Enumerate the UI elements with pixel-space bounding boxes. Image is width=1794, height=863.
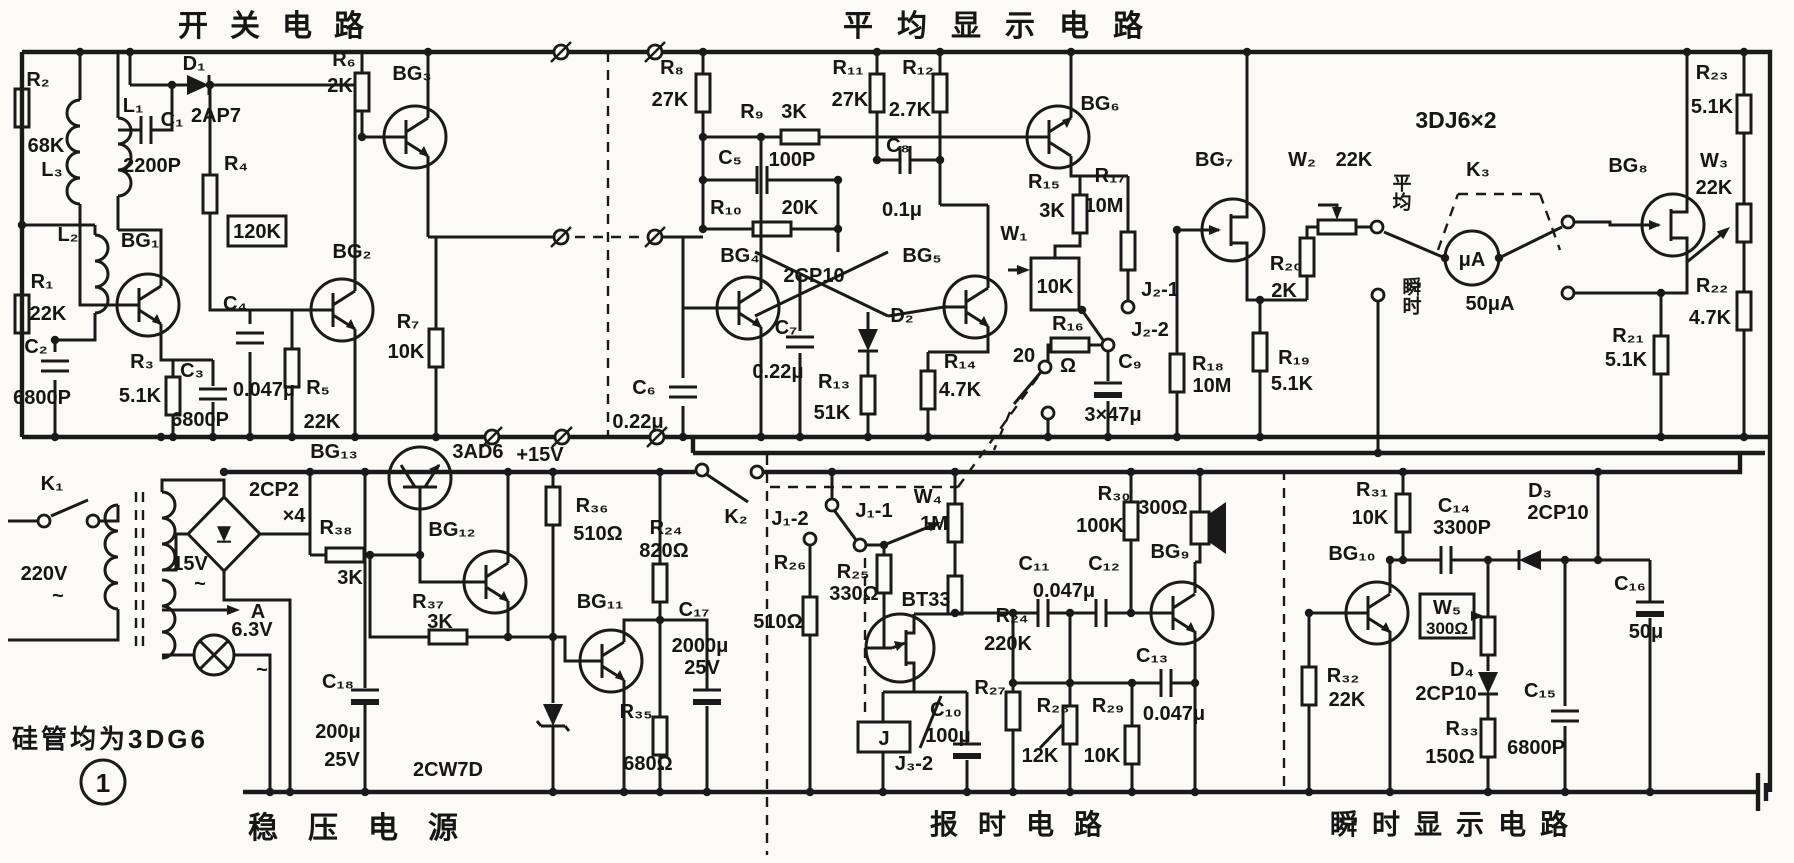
capacitor-C4 xyxy=(236,333,264,343)
label-D3: D₃ xyxy=(1528,480,1552,502)
label-D2: D₂ xyxy=(890,305,913,327)
label-R29-value: 10K xyxy=(1084,745,1121,767)
label-R2: R₂ xyxy=(26,69,49,91)
capacitor-C12 xyxy=(1096,599,1106,627)
resistor-R24-psu xyxy=(653,564,667,602)
title-switch-circuit: 开关电路 xyxy=(178,10,386,43)
capacitor-C14 xyxy=(1441,546,1451,574)
label-R21-value: 5.1K xyxy=(1605,349,1648,371)
label-C13: C₁₃ xyxy=(1136,645,1168,667)
transistor-BG2 xyxy=(311,279,373,341)
label-R15: R₁₅ xyxy=(1028,171,1060,193)
label-R17: R₁₇ xyxy=(1095,165,1126,187)
connector-icon xyxy=(551,227,571,247)
label-W2-value: 22K xyxy=(1336,149,1373,171)
label-D4-value: 2CP10 xyxy=(1415,683,1476,705)
label-R23: R₂₃ xyxy=(1696,62,1729,84)
label-220V-tilde: ~ xyxy=(52,585,64,607)
label-C6-value: 0.22μ xyxy=(612,411,663,433)
arrow-A-icon xyxy=(227,605,240,615)
label-C2-value: 6800P xyxy=(13,387,71,409)
contact-R16-lower xyxy=(1042,407,1054,419)
label-R16-unit: Ω xyxy=(1060,355,1076,377)
resistor-R36 xyxy=(546,487,560,525)
label-R12-value: 2.7K xyxy=(889,99,932,121)
label-C2: C₂ xyxy=(24,336,47,358)
label-relay-J: J xyxy=(878,728,889,750)
resistor-R9 xyxy=(781,130,819,144)
label-BG13: BG₁₃ xyxy=(310,441,358,463)
label-C9: C₉ xyxy=(1118,351,1141,373)
label-W1-value: 10K xyxy=(1037,276,1074,298)
label-2CP2-x4: ×4 xyxy=(283,505,307,527)
label-C3-value: 6800P xyxy=(171,409,229,431)
label-D2-type: 2CP10 xyxy=(783,265,844,287)
resistor-R23 xyxy=(1737,95,1751,133)
resistor-R21 xyxy=(1654,336,1668,374)
label-R28-value: 12K xyxy=(1022,745,1059,767)
label-R6: R₆ xyxy=(332,49,356,71)
resistor-R11 xyxy=(870,74,884,112)
label-C11: C₁₁ xyxy=(1019,553,1050,575)
transformer-secondary-6v-coil xyxy=(162,580,175,658)
label-R6-value: 2K xyxy=(327,75,353,97)
contact-J1-1 xyxy=(854,539,866,551)
label-3DJ6x2: 3DJ6×2 xyxy=(1415,107,1496,133)
label-C8-value: 0.1μ xyxy=(882,199,922,221)
label-C18: C₁₈ xyxy=(322,671,354,693)
label-R14: R₁₄ xyxy=(944,351,976,373)
label-C5: C₅ xyxy=(718,147,742,169)
label-R30: R₃₀ xyxy=(1098,483,1131,505)
label-C4: C₄ xyxy=(223,293,247,315)
label-R8-value: 27K xyxy=(652,89,689,111)
label-R37-value: 3K xyxy=(427,611,453,633)
contact-J2-2 xyxy=(1102,339,1114,351)
label-2CW7D: 2CW7D xyxy=(413,759,483,781)
capacitor-C6 xyxy=(669,387,697,397)
label-R20-value: 2K xyxy=(1271,280,1297,302)
resistor-R8 xyxy=(696,74,710,112)
resistor-R7 xyxy=(429,329,443,367)
label-L1: L₁ xyxy=(123,95,144,117)
label-R5: R₅ xyxy=(306,377,330,399)
label-R37: R₃₇ xyxy=(412,591,444,613)
label-BG5: BG₅ xyxy=(902,245,941,267)
resistors xyxy=(15,73,1751,764)
label-R7: R₇ xyxy=(397,311,419,333)
potentiometer-W2 xyxy=(1318,220,1356,234)
label-R11: R₁₁ xyxy=(833,57,864,79)
label-C1: C₁ xyxy=(161,109,184,131)
label-R9-value: 3K xyxy=(781,101,807,123)
label-plus15V: +15V xyxy=(516,444,564,466)
label-C4-value: 0.047μ xyxy=(233,379,295,401)
resistor-R32 xyxy=(1302,667,1316,705)
label-J1-2: J₁-2 xyxy=(771,508,808,530)
label-speaker-impedance: 300Ω xyxy=(1138,497,1187,519)
label-BG13-type: 3AD6 xyxy=(452,441,503,463)
coil-L3 xyxy=(67,100,80,204)
label-C17: C₁₇ xyxy=(679,599,710,621)
diode-D1 xyxy=(187,75,209,95)
label-R19-value: 5.1K xyxy=(1271,373,1314,395)
arrow-W2-icon xyxy=(1332,207,1342,220)
label-C3: C₃ xyxy=(180,360,204,382)
label-15V: 15V xyxy=(172,553,208,575)
label-C16-value: 50μ xyxy=(1629,621,1663,643)
label-C12: C₁₂ xyxy=(1088,553,1120,575)
label-K2: K₂ xyxy=(724,506,747,528)
potentiometer-W3 xyxy=(1737,204,1751,242)
label-BG9: BG₉ xyxy=(1150,541,1189,563)
label-R10: R₁₀ xyxy=(710,197,742,219)
label-D4: D₄ xyxy=(1450,659,1474,681)
resistor-R26 xyxy=(803,597,817,635)
label-R4: R₄ xyxy=(224,153,248,175)
label-220V: 220V xyxy=(21,563,68,585)
label-R2-value: 68K xyxy=(28,135,65,157)
capacitor-C1 xyxy=(141,116,151,144)
title-power-supply: 稳压电源 xyxy=(248,812,488,845)
switch-K2-contact xyxy=(751,466,763,478)
label-W2: W₂ xyxy=(1288,149,1316,171)
label-R27: R₂₇ xyxy=(974,677,1005,699)
label-R19: R₁₉ xyxy=(1278,347,1310,369)
label-meter-unit: μA xyxy=(1459,249,1486,271)
ujt-BT33 xyxy=(866,614,934,682)
label-R31: R₃₁ xyxy=(1356,479,1388,501)
label-R36-value: 510Ω xyxy=(573,523,622,545)
label-J2-2: J₂-2 xyxy=(1131,319,1169,341)
label-6.3V: 6.3V xyxy=(231,619,273,641)
connector-icon xyxy=(551,42,571,62)
label-R12: R₁₂ xyxy=(902,57,934,79)
label-R26: R₂₆ xyxy=(774,552,806,574)
label-R13: R₁₃ xyxy=(818,371,850,393)
label-R25-value: 330Ω xyxy=(829,583,878,605)
contact-J2-1 xyxy=(1122,301,1134,313)
label-R25: R₂₅ xyxy=(837,561,870,583)
label-R3-value: 5.1K xyxy=(119,385,162,407)
label-R4-value: 120K xyxy=(233,221,281,243)
capacitor-C11 xyxy=(1038,599,1048,627)
label-R36: R₃₆ xyxy=(576,495,609,517)
label-C17-voltage: 25V xyxy=(684,657,720,679)
diode-D3 xyxy=(1519,550,1541,570)
potentiometer-W4 xyxy=(948,504,962,542)
switch-K1-contact xyxy=(87,515,99,527)
label-R3: R₃ xyxy=(130,351,154,373)
contact-K3-right-upper xyxy=(1562,216,1574,228)
fet-BG7 xyxy=(1202,199,1264,261)
labels-chime: K₂ J₁-1 J₁-2 R₂₅ 330Ω R₂₆ 510Ω W₄ 1M BT3… xyxy=(724,483,1205,775)
label-BG8: BG₈ xyxy=(1608,155,1647,177)
label-R31-value: 10K xyxy=(1352,507,1389,529)
resistor-R14 xyxy=(921,371,935,409)
label-BG12: BG₁₂ xyxy=(428,519,475,541)
section-titles: 开关电路 平均显示电路 稳压电源 报时电路 瞬时显示电路 硅管均为3DG6 1 xyxy=(12,10,1582,845)
figure-number: 1 xyxy=(96,768,110,798)
label-R21: R₂₁ xyxy=(1612,325,1644,347)
label-R17-value: 10M xyxy=(1085,195,1124,217)
transistor-BG5 xyxy=(944,276,1006,338)
transistor-BG6 xyxy=(1027,106,1089,168)
label-R29: R₂₉ xyxy=(1092,695,1124,717)
label-C18-voltage: 25V xyxy=(324,749,360,771)
resistor-R16 xyxy=(1051,338,1089,352)
label-D1: D₁ xyxy=(183,53,206,75)
label-switch-instant: 瞬时 xyxy=(1400,277,1422,315)
label-R16: R₁₆ xyxy=(1052,313,1084,335)
label-J3-2: J₃-2 xyxy=(895,753,933,775)
label-6.3V-tilde: ~ xyxy=(256,659,268,681)
capacitor-C15 xyxy=(1551,711,1579,721)
label-BG4: BG₄ xyxy=(720,245,760,267)
label-R8: R₈ xyxy=(660,57,684,79)
resistor-R35 xyxy=(653,717,667,755)
speaker-icon xyxy=(1191,502,1226,554)
label-R13-value: 51K xyxy=(814,402,851,424)
label-meter-range: 50μA xyxy=(1466,293,1515,315)
label-R33-value: 150Ω xyxy=(1425,746,1474,768)
contact-R16-arm xyxy=(1039,361,1051,373)
label-R18-value: 10M xyxy=(1193,375,1232,397)
resistor-R22 xyxy=(1737,292,1751,330)
coil-L2 xyxy=(95,235,108,313)
label-L3: L₃ xyxy=(41,159,62,181)
switch-K1-contact xyxy=(38,515,50,527)
bridge-diode-icon xyxy=(217,526,231,541)
resistor-R19 xyxy=(1253,333,1267,371)
schematic-page: 开关电路 平均显示电路 稳压电源 报时电路 瞬时显示电路 硅管均为3DG6 1 … xyxy=(0,0,1794,863)
label-BG10: BG₁₀ xyxy=(1328,543,1375,565)
label-R15-value: 3K xyxy=(1039,200,1065,222)
label-R9: R₉ xyxy=(740,101,763,123)
title-average-display: 平均显示电路 xyxy=(843,10,1167,43)
label-C14-value: 3300P xyxy=(1433,517,1491,539)
transistor-BG10 xyxy=(1346,582,1408,644)
resistor-R18 xyxy=(1170,354,1184,392)
label-D1-value: 2AP7 xyxy=(191,105,241,127)
transistor-BG12 xyxy=(464,551,526,613)
zener-2CW7D xyxy=(537,704,569,731)
label-R28: R₂₈ xyxy=(1037,695,1070,717)
labels-average-display: R₈ 27K R₉ 3K C₅ 100P R₁₀ 20K R₁₁ 27K R₁₂… xyxy=(612,57,1733,433)
label-C10: C₁₀ xyxy=(930,699,962,721)
label-R1-value: 22K xyxy=(30,303,67,325)
label-C1-value: 2200P xyxy=(123,155,181,177)
label-D3-value: 2CP10 xyxy=(1527,502,1588,524)
label-W4: W₄ xyxy=(914,486,942,508)
label-C7-value: 0.22μ xyxy=(752,361,803,383)
label-C6: C₆ xyxy=(632,377,656,399)
label-R35: R₃₅ xyxy=(620,701,653,723)
label-C11-C12-value: 0.047μ xyxy=(1033,580,1095,602)
label-J1-1: J₁-1 xyxy=(855,500,892,522)
capacitor-C3 xyxy=(199,389,227,399)
resistor-R13 xyxy=(861,376,875,414)
resistor-R10 xyxy=(753,222,791,236)
label-R11-value: 27K xyxy=(832,89,869,111)
capacitor-C13 xyxy=(1161,669,1171,697)
main-rails xyxy=(22,52,1770,811)
label-C9-value: 3×47μ xyxy=(1084,404,1141,426)
label-W3: W₃ xyxy=(1700,150,1728,172)
label-C8: C₈ xyxy=(886,135,910,157)
label-R22: R₂₂ xyxy=(1696,275,1728,297)
label-R16-value: 20 xyxy=(1013,345,1035,367)
label-R26-value: 510Ω xyxy=(753,611,802,633)
diode-D4 xyxy=(1478,672,1498,694)
label-R38-value: 3K xyxy=(337,567,363,589)
resistor-R38 xyxy=(326,548,364,562)
capacitor-C18 xyxy=(351,690,379,705)
label-C17-value: 2000μ xyxy=(672,635,729,657)
label-C15: C₁₅ xyxy=(1524,680,1556,702)
label-R14-value: 4.7K xyxy=(939,379,982,401)
label-R24-psu: R₂₄ xyxy=(650,517,683,539)
label-R33: R₃₃ xyxy=(1446,718,1479,740)
capacitor-C17 xyxy=(693,690,721,705)
label-2CP2: 2CP2 xyxy=(249,479,299,501)
label-L2: L₂ xyxy=(57,224,78,246)
resistor-R29 xyxy=(1125,726,1139,764)
label-W1: W₁ xyxy=(1000,223,1027,245)
transistor-BG13 xyxy=(389,447,451,509)
potentiometer-W5 xyxy=(1481,617,1495,655)
diode-D2 xyxy=(858,329,878,351)
resistor-R27 xyxy=(1006,692,1020,730)
contact-K3-right-lower xyxy=(1562,287,1574,299)
label-BT33: BT33 xyxy=(902,589,951,611)
label-R1: R₁ xyxy=(31,271,54,293)
resistor-R25 xyxy=(877,555,891,593)
label-BG3: BG₃ xyxy=(392,63,431,85)
schematic-canvas: 开关电路 平均显示电路 稳压电源 报时电路 瞬时显示电路 硅管均为3DG6 1 … xyxy=(0,0,1794,863)
label-R24-psu-value: 820Ω xyxy=(639,540,688,562)
resistor-R12 xyxy=(933,74,947,112)
connector-icon xyxy=(645,227,665,247)
label-R10-value: 20K xyxy=(782,197,819,219)
label-C7: C₇ xyxy=(775,317,797,339)
label-R20: R₂₀ xyxy=(1270,253,1302,275)
resistor-R6 xyxy=(355,73,369,111)
transistor-BG1 xyxy=(117,274,179,336)
capacitor-C2 xyxy=(41,361,69,371)
label-W5: W₅ xyxy=(1433,597,1461,619)
label-R24-chime-value: 220K xyxy=(984,633,1032,655)
label-R18: R₁₈ xyxy=(1192,353,1224,375)
title-instant-display: 瞬时显示电路 xyxy=(1330,809,1582,840)
label-R38: R₃₈ xyxy=(319,517,352,539)
label-W3-value: 22K xyxy=(1696,177,1733,199)
label-BG7: BG₇ xyxy=(1195,149,1233,171)
label-BG6: BG₆ xyxy=(1080,93,1119,115)
transistor-BG9 xyxy=(1151,582,1213,644)
label-C15-value: 6800P xyxy=(1507,737,1565,759)
pilot-lamp-icon xyxy=(194,635,234,675)
label-C10-value: 100μ xyxy=(925,725,971,747)
label-C14: C₁₄ xyxy=(1438,495,1470,517)
label-BG1: BG₁ xyxy=(121,230,159,252)
contact-J1-1 xyxy=(826,499,838,511)
title-chime: 报时电路 xyxy=(930,809,1122,840)
contact-K3-instant xyxy=(1372,289,1384,301)
label-C13-value: 0.047μ xyxy=(1143,703,1205,725)
label-K1: K₁ xyxy=(41,473,64,495)
contact-K3-average xyxy=(1371,221,1383,233)
capacitor-C16 xyxy=(1636,602,1664,617)
label-R32: R₃₂ xyxy=(1327,665,1360,687)
label-R32-value: 22K xyxy=(1329,689,1366,711)
resistor-R33 xyxy=(1481,719,1495,757)
label-R35-value: 680Ω xyxy=(623,753,672,775)
label-R22-value: 4.7K xyxy=(1689,307,1732,329)
label-15V-tilde: ~ xyxy=(194,573,206,595)
label-K3: K₃ xyxy=(1466,159,1490,181)
transistor-BG11 xyxy=(580,630,642,692)
label-R23-value: 5.1K xyxy=(1691,96,1734,118)
label-C16: C₁₆ xyxy=(1614,573,1646,595)
resistor-R31 xyxy=(1396,494,1410,532)
transistor-BG3 xyxy=(384,106,446,168)
label-W4-value: 1M xyxy=(920,513,948,535)
label-R24-chime: R₂₄ xyxy=(996,605,1029,627)
fet-BG8 xyxy=(1642,194,1704,256)
resistor-R17 xyxy=(1121,232,1135,270)
label-BG2: BG₂ xyxy=(333,241,372,263)
label-J2-1: J₂-1 xyxy=(1141,279,1179,301)
label-C18-value: 200μ xyxy=(315,721,361,743)
switch-K2-arm xyxy=(706,474,748,502)
contact-J1-2 xyxy=(804,533,816,545)
capacitor-C9 xyxy=(1094,383,1122,398)
label-R5-value: 22K xyxy=(304,411,341,433)
resistor-R30 xyxy=(1124,502,1138,540)
label-BG11: BG₁₁ xyxy=(577,591,624,613)
label-switch-average: 平均 xyxy=(1390,173,1412,211)
label-R7-value: 10K xyxy=(388,341,425,363)
label-C5-value: 100P xyxy=(769,149,816,171)
label-R30-value: 100K xyxy=(1076,515,1124,537)
resistor-R4 xyxy=(203,175,217,213)
label-W5-value: 300Ω xyxy=(1426,619,1468,638)
note-transistors: 硅管均为3DG6 xyxy=(12,724,208,754)
